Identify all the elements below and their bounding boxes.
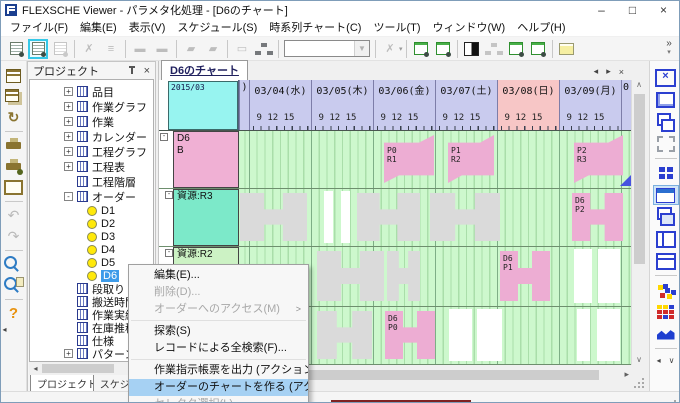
pin-icon[interactable] (128, 66, 136, 75)
menubar-item-6[interactable]: ツール(T) (367, 19, 426, 37)
print-icon[interactable] (3, 135, 25, 156)
toolbar-separator (375, 40, 376, 58)
scroll-right-icon[interactable]: ▸ (624, 369, 629, 380)
table-icon (77, 131, 88, 142)
tree-item-label: D5 (101, 257, 115, 269)
search-icon[interactable] (3, 254, 25, 275)
order-icon (87, 258, 97, 268)
tree-expander-icon[interactable]: - (64, 192, 73, 201)
tree-item-D1[interactable]: D1 (30, 204, 153, 217)
tree-item-オーダー[interactable]: -オーダー (30, 189, 153, 204)
bar-label: D6 P1 (503, 254, 513, 272)
table-icon (77, 146, 88, 157)
scroll-up-icon[interactable]: ∧ (632, 80, 646, 89)
row-collapse-icon[interactable]: - (165, 191, 173, 199)
idle-time-band (574, 249, 592, 303)
table-icon (77, 283, 88, 294)
table-icon (77, 176, 88, 187)
tree-item-label: D4 (101, 244, 115, 256)
idle-time-band (341, 191, 350, 243)
chart-vscrollbar[interactable]: ∧ ∨ (631, 80, 646, 365)
order-icon (87, 219, 97, 229)
window-resize-grip[interactable] (665, 392, 679, 403)
date-label: 03/05(木) (312, 82, 373, 97)
toolbar-separator (278, 40, 279, 58)
menubar-item-4[interactable]: スケジュール(S) (171, 19, 263, 37)
row-collapse-icon[interactable]: - (165, 249, 173, 257)
timechart-settings-edit-icon[interactable] (28, 39, 48, 59)
toolbar-separator (74, 40, 75, 58)
menu-separator (131, 320, 306, 321)
toolbar-separator (125, 40, 126, 58)
toolbar-separator (5, 299, 23, 300)
chart-refresh-icon[interactable] (528, 39, 548, 59)
hour-tick-marks (563, 126, 621, 130)
tab-d6-chart[interactable]: D6のチャート (161, 60, 248, 80)
scroll-left-icon[interactable]: ◂ (29, 364, 42, 373)
zoom-selection-icon[interactable] (653, 134, 679, 154)
hour-tick-marks (377, 126, 435, 130)
order-icon (87, 206, 97, 216)
resource-map-icon[interactable] (653, 280, 679, 300)
panel-close-icon[interactable]: × (142, 65, 152, 77)
table-icon (77, 309, 88, 320)
context-menu-item-2: 削除(D)... (129, 284, 308, 301)
context-menu-item-6[interactable]: レコードによる全検索(F)... (129, 340, 308, 357)
toolbar-left: ↻↶↷?◂ (1, 61, 27, 391)
search-results-icon[interactable] (3, 275, 25, 296)
date-label: ) (240, 82, 249, 93)
tree-expander-icon[interactable]: + (64, 87, 73, 96)
gantt-row-2: -資源:R3D6 P2 (159, 189, 631, 247)
context-menu-item-10: セレクタ選択(L)... (129, 396, 308, 403)
toolbar-overflow-button[interactable]: » ▾ (662, 39, 676, 57)
contrast-view-icon[interactable] (462, 39, 482, 59)
date-column-03/04(水): 03/04(水)9 12 15 (249, 80, 311, 130)
table-icon (77, 296, 88, 307)
row-canvas: D6 P2 (239, 189, 631, 246)
bar-label: P2 R3 (577, 146, 587, 164)
split-vertical-icon[interactable] (653, 229, 679, 249)
tree-item-label: 作業グラフ (92, 99, 147, 115)
maximize-button[interactable]: □ (617, 1, 648, 19)
window-link-icon[interactable] (254, 39, 274, 59)
toolbar-separator (655, 348, 677, 349)
bar-label: P0 R1 (387, 146, 397, 164)
tree-item-D3[interactable]: D3 (30, 230, 153, 243)
menubar-item-7[interactable]: ウィンドウ(W) (427, 19, 512, 37)
chart-refresh-all-icon[interactable] (506, 39, 526, 59)
context-menu: 編集(E)...削除(D)...オーダーへのアクセス(M)>探索(S)レコードに… (128, 264, 309, 403)
tree-item-作業グラフ[interactable]: +作業グラフ (30, 99, 153, 114)
tree-item-label: D2 (101, 218, 115, 230)
idle-time-band (597, 309, 620, 361)
tree-item-作業[interactable]: +作業 (30, 114, 153, 129)
toolbar-top: ✗≡▬▬▰▰▭▼✗▾ (1, 37, 679, 61)
table-icon (77, 322, 88, 333)
app-logo-icon (5, 4, 17, 16)
idle-time-band (324, 191, 333, 243)
chart-corner-cell: 2015/03 (159, 80, 239, 130)
hour-tick-labels: 9 12 15 (312, 113, 363, 123)
highlighted-operation-bar[interactable]: D6 P0 (385, 311, 435, 359)
hour-tick-labels: 9 12 15 (560, 113, 611, 123)
tree-expander-icon[interactable]: + (64, 147, 73, 156)
order-operation-bar[interactable]: P2 R3 (574, 135, 623, 183)
operation-bar[interactable] (317, 311, 372, 359)
reload-icon[interactable]: ↻ (3, 107, 25, 128)
operation-bar[interactable] (430, 193, 500, 241)
help-icon[interactable]: ? (3, 303, 25, 324)
scroll-down-icon[interactable]: ∨ (632, 355, 646, 364)
pegging-chain-icon: ≡ (101, 39, 121, 59)
menu-separator (131, 359, 306, 360)
order-icon (87, 271, 97, 281)
scrollbar-thumb[interactable] (634, 94, 645, 264)
menu-bar: ファイル(F)編集(E)表示(V)スケジュール(S)時系列チャート(C)ツール(… (1, 19, 679, 37)
split-horizontal-icon[interactable] (653, 251, 679, 271)
highlighted-operation-bar[interactable]: D6 P1 (500, 251, 550, 301)
hour-tick-marks (439, 126, 497, 130)
load-grid-icon[interactable] (653, 302, 679, 322)
gantt-row-1: -D6 BP0 R1P1 R2P2 R3 (159, 131, 631, 189)
window-title: FLEXSCHE Viewer - パラメタ化処理 - [D6のチャート] (22, 2, 288, 18)
selector-combo[interactable]: ▼ (284, 40, 370, 57)
table-icon (77, 191, 88, 202)
tab-scroll-right-icon[interactable]: ▸ (602, 66, 615, 77)
org-view-icon (484, 39, 504, 59)
window-controls: – □ × (586, 1, 679, 19)
date-column-03/08(日): 03/08(日)9 12 15 (497, 80, 559, 130)
tree-item-カレンダー[interactable]: +カレンダー (30, 129, 153, 144)
print-setup-icon[interactable] (3, 156, 25, 177)
row-canvas: P0 R1P1 R2P2 R3 (239, 131, 631, 188)
date-column-0: 0 (621, 80, 630, 130)
flag-erase-icon: ▰ (203, 39, 223, 59)
row-label[interactable]: 資源:R3 (173, 189, 239, 246)
submenu-arrow-icon: > (296, 301, 301, 318)
tab-navigation: ◂ ▸ × (590, 66, 628, 77)
menubar-item-8[interactable]: ヘルプ(H) (511, 19, 571, 37)
row-collapse-icon[interactable]: - (160, 133, 168, 141)
menubar-item-3[interactable]: 表示(V) (123, 19, 172, 37)
tree-item-label: D1 (101, 205, 115, 217)
tree-expander-icon[interactable]: + (64, 117, 73, 126)
arrow-icon[interactable]: ◂ (657, 356, 661, 365)
date-label: 03/08(日) (498, 82, 559, 97)
order-icon (87, 245, 97, 255)
table-icon (77, 161, 88, 172)
tree-item-label: 工程階層 (92, 174, 136, 190)
tree-item-label: カレンダー (92, 129, 147, 145)
table-icon (77, 116, 88, 127)
tab-scroll-left-icon[interactable]: ◂ (590, 66, 603, 77)
title-bar: FLEXSCHE Viewer - パラメタ化処理 - [D6のチャート] – … (1, 1, 679, 19)
idle-time-band (577, 309, 590, 361)
undo-icon: ↶ (3, 205, 25, 226)
operation-bar[interactable] (317, 251, 384, 301)
pegging-remove-icon: ✗ (79, 39, 99, 59)
toolbar-separator (227, 40, 228, 58)
tree-item-D4[interactable]: D4 (30, 243, 153, 256)
project-panel-header: プロジェクト × (28, 62, 155, 79)
toolbar-right: ◂∨ (649, 61, 680, 391)
hour-tick-labels: 9 12 15 (374, 113, 425, 123)
bar-label: D6 P0 (388, 314, 398, 332)
chart-date-header: 2015/03 )03/04(水)9 12 1503/05(木)9 12 150… (159, 80, 631, 131)
date-column-03/05(木): 03/05(木)9 12 15 (311, 80, 373, 130)
tree-expander-icon[interactable]: + (64, 132, 73, 141)
scrollbar-thumb[interactable] (42, 364, 114, 373)
timechart-settings-copy-icon (50, 39, 70, 59)
idle-time-band (449, 309, 472, 361)
tree-expander-icon[interactable]: + (64, 162, 73, 171)
context-menu-item-1[interactable]: 編集(E)... (129, 267, 308, 284)
date-column-03/07(土): 03/07(土)9 12 15 (435, 80, 497, 130)
corner-month-label: 2015/03 (168, 81, 238, 130)
context-menu-item-3: オーダーへのアクセス(M)> (129, 301, 308, 318)
tree-item-label: 作業 (92, 114, 114, 130)
unlink-gear-icon: ✗ (380, 39, 400, 59)
date-column-03/06(金): 03/06(金)9 12 15 (373, 80, 435, 130)
combo-arrow-icon[interactable]: ▼ (354, 41, 369, 56)
flag-add-icon: ▰ (181, 39, 201, 59)
chart-delete-icon[interactable] (653, 68, 679, 88)
tile-windows-icon[interactable] (653, 163, 679, 183)
toolbar-separator (457, 40, 458, 58)
toolbar-separator (655, 275, 677, 276)
tree-item-label: 工程表 (92, 159, 125, 175)
tree-item-D2[interactable]: D2 (30, 217, 153, 230)
tree-item-label: オーダー (92, 189, 136, 205)
redo-icon: ↷ (3, 226, 25, 247)
tree-item-label: 工程グラフ (92, 144, 147, 160)
table-icon (77, 86, 88, 97)
load-graph-icon[interactable] (653, 324, 679, 344)
operation-bar[interactable] (357, 193, 420, 241)
tree-item-工程グラフ[interactable]: +工程グラフ (30, 144, 153, 159)
close-button[interactable]: × (648, 1, 679, 19)
context-menu-item-5[interactable]: 探索(S) (129, 323, 308, 340)
context-menu-item-8[interactable]: 作業指示帳票を出力 (アクション) (129, 362, 308, 379)
date-label: 03/09(月) (560, 82, 621, 97)
tree-item-工程階層[interactable]: 工程階層 (30, 174, 153, 189)
row-label[interactable]: D6 B (173, 131, 239, 188)
hour-tick-marks (501, 126, 559, 130)
application-window: FLEXSCHE Viewer - パラメタ化処理 - [D6のチャート] – … (0, 0, 680, 403)
collapse-toolbar-icon[interactable]: ◂ (3, 324, 25, 334)
chart-new-window-icon[interactable] (653, 112, 679, 132)
chart-window-gear-2-icon[interactable] (433, 39, 453, 59)
chart-tab-bar: D6のチャート ◂ ▸ × (159, 61, 648, 80)
date-column-03/09(月): 03/09(月)9 12 15 (559, 80, 621, 130)
idle-time-band (477, 309, 502, 361)
toolbar-separator (406, 40, 407, 58)
hour-tick-labels: 9 12 15 (498, 113, 549, 123)
hour-tick-marks (315, 126, 373, 130)
order-operation-bar[interactable]: P1 R2 (448, 135, 494, 183)
dock-arrow-icons[interactable]: ◂∨ (657, 356, 675, 365)
more-content-indicator-icon[interactable] (620, 175, 631, 186)
chart-view-icon[interactable] (653, 185, 679, 205)
tree-item-品目[interactable]: +品目 (30, 84, 153, 99)
toolbar-separator (552, 40, 553, 58)
date-label: 03/06(金) (374, 82, 435, 97)
cascade-windows-icon[interactable] (653, 207, 679, 227)
tab-close-icon[interactable]: × (615, 67, 628, 77)
arrow-icon[interactable]: ∨ (669, 356, 675, 365)
overflow-arrow-icon: ▾ (662, 48, 676, 57)
bar-add-icon: ▬ (130, 39, 150, 59)
bar-erase-icon: ▬ (152, 39, 172, 59)
bar-label: P1 R2 (451, 146, 461, 164)
hour-tick-labels: 9 12 15 (250, 113, 301, 123)
date-label: 03/07(土) (436, 82, 497, 97)
menubar-item-2[interactable]: 編集(E) (74, 19, 123, 37)
tree-item-label: 品目 (92, 84, 114, 100)
toolbar-separator (5, 250, 23, 251)
toolbar-separator (5, 201, 23, 202)
table-icon (77, 335, 88, 346)
timechart-settings-new-icon[interactable] (6, 39, 26, 59)
highlighted-operation-bar[interactable]: D6 P2 (572, 193, 623, 241)
table-icon (77, 101, 88, 112)
minimize-button[interactable]: – (586, 1, 617, 19)
context-menu-item-9[interactable]: オーダーのチャートを作る (アクション) (129, 379, 308, 396)
resize-grip[interactable] (631, 367, 647, 383)
print-preview-icon[interactable] (3, 177, 25, 198)
tree-item-工程表[interactable]: +工程表 (30, 159, 153, 174)
tree-item-label: D3 (101, 231, 115, 243)
idle-time-band (598, 249, 620, 303)
date-column-): ) (239, 80, 249, 130)
date-label: 03/04(水) (250, 82, 311, 97)
order-operation-bar[interactable]: P0 R1 (384, 135, 434, 183)
chart-restore-icon[interactable] (653, 90, 679, 110)
operation-bar[interactable] (387, 251, 420, 301)
project-panel-title: プロジェクト (33, 63, 128, 79)
save-icon[interactable] (3, 65, 25, 86)
bar-label: D6 P2 (575, 196, 585, 214)
toolbar-separator (655, 158, 677, 159)
date-label: 0 (622, 82, 630, 93)
order-icon (87, 232, 97, 242)
save-copy-icon[interactable] (3, 86, 25, 107)
chart-window-gear-1-icon[interactable] (411, 39, 431, 59)
table-icon (77, 348, 88, 359)
tree-expander-icon[interactable]: + (64, 102, 73, 111)
hour-tick-marks (253, 126, 311, 130)
tree-expander-icon[interactable]: + (64, 349, 73, 358)
window-delete-icon: ▭ (232, 39, 252, 59)
toolbar-separator (176, 40, 177, 58)
memo-note-icon[interactable] (557, 39, 577, 59)
toolbar-separator (5, 131, 23, 132)
menubar-item-5[interactable]: 時系列チャート(C) (263, 19, 367, 37)
operation-bar[interactable] (240, 193, 307, 241)
hour-tick-labels: 9 12 15 (436, 113, 487, 123)
menubar-item-1[interactable]: ファイル(F) (4, 19, 74, 37)
